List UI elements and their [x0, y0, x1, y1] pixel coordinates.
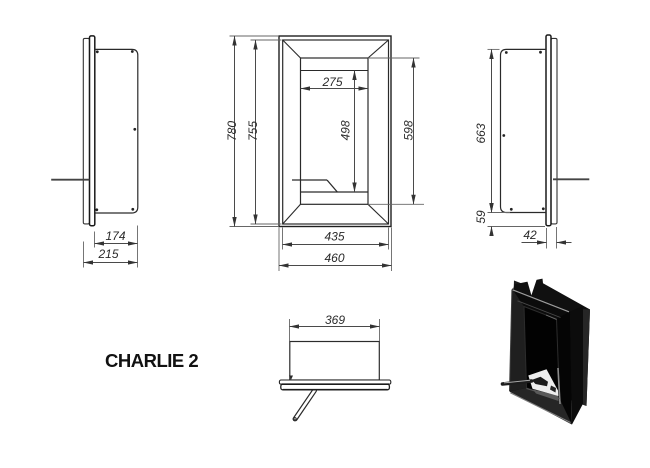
svg-text:174: 174: [105, 229, 125, 243]
svg-text:275: 275: [321, 75, 342, 89]
svg-text:598: 598: [401, 120, 415, 140]
svg-text:369: 369: [325, 313, 345, 327]
svg-text:42: 42: [523, 228, 537, 242]
svg-text:780: 780: [225, 121, 239, 141]
svg-text:460: 460: [324, 251, 344, 265]
svg-text:CHARLIE 2: CHARLIE 2: [105, 350, 198, 371]
svg-text:215: 215: [97, 247, 118, 261]
svg-text:435: 435: [324, 230, 344, 244]
svg-text:59: 59: [474, 210, 488, 224]
svg-text:755: 755: [246, 121, 260, 141]
svg-text:663: 663: [474, 123, 488, 143]
svg-text:498: 498: [339, 120, 353, 140]
